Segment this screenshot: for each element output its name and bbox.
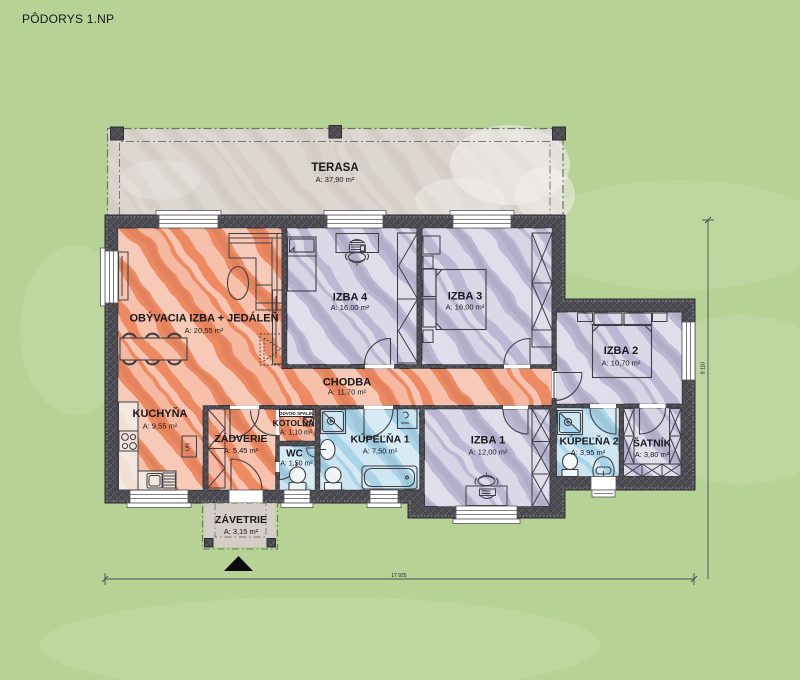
svg-text:OBÝVACIA IZBA + JEDÁLEŇ: OBÝVACIA IZBA + JEDÁLEŇ: [129, 312, 278, 325]
svg-text:A: 3,95 m²: A: 3,95 m²: [571, 448, 606, 457]
svg-text:ZÁDVERIE: ZÁDVERIE: [214, 432, 267, 445]
svg-text:A: 3,15 m²: A: 3,15 m²: [224, 527, 259, 536]
svg-text:A: 16,00 m²: A: 16,00 m²: [446, 303, 485, 312]
svg-text:PÔDORYS 1.NP: PÔDORYS 1.NP: [22, 11, 114, 26]
svg-text:IZBA 2: IZBA 2: [604, 345, 638, 357]
svg-text:A: 37,90 m²: A: 37,90 m²: [316, 175, 355, 184]
svg-text:A: 11,70 m²: A: 11,70 m²: [328, 388, 367, 397]
svg-text:WC: WC: [286, 449, 303, 460]
svg-text:A: 10,70 m²: A: 10,70 m²: [602, 359, 641, 368]
svg-text:A: 16,00 m²: A: 16,00 m²: [331, 303, 370, 312]
svg-text:A: 3,80 m²: A: 3,80 m²: [635, 450, 670, 459]
svg-text:ŠATNÍK: ŠATNÍK: [633, 437, 672, 450]
svg-text:KOTOLŇA: KOTOLŇA: [273, 417, 315, 428]
svg-text:KÚPEĽŇA 2: KÚPEĽŇA 2: [559, 435, 618, 448]
svg-text:UR: UR: [186, 443, 192, 451]
svg-text:17 925: 17 925: [391, 573, 407, 579]
svg-text:KÚPEĽŇA 1: KÚPEĽŇA 1: [350, 433, 409, 446]
svg-text:A: 9,55 m²: A: 9,55 m²: [143, 422, 178, 431]
svg-text:IZBA 4: IZBA 4: [333, 292, 368, 304]
svg-text:IZBA 1: IZBA 1: [471, 435, 505, 447]
svg-text:IZBA 3: IZBA 3: [448, 291, 482, 303]
svg-text:A: 1,10 m²: A: 1,10 m²: [280, 430, 313, 437]
svg-text:KUCHYŇA: KUCHYŇA: [133, 407, 188, 420]
svg-text:TERASA: TERASA: [311, 162, 358, 174]
svg-text:A: 5,45 m²: A: 5,45 m²: [224, 446, 259, 455]
svg-text:A: 20,55 m²: A: 20,55 m²: [185, 326, 224, 335]
svg-text:A: 1,50 m²: A: 1,50 m²: [280, 461, 313, 468]
svg-text:A: 12,00 m²: A: 12,00 m²: [469, 448, 508, 457]
svg-text:9 110: 9 110: [701, 362, 707, 374]
svg-text:ZÁVETRIE: ZÁVETRIE: [215, 513, 267, 526]
svg-text:ODVOD SPALÍN: ODVOD SPALÍN: [279, 409, 314, 416]
svg-text:A: 7,50 m²: A: 7,50 m²: [363, 447, 398, 456]
